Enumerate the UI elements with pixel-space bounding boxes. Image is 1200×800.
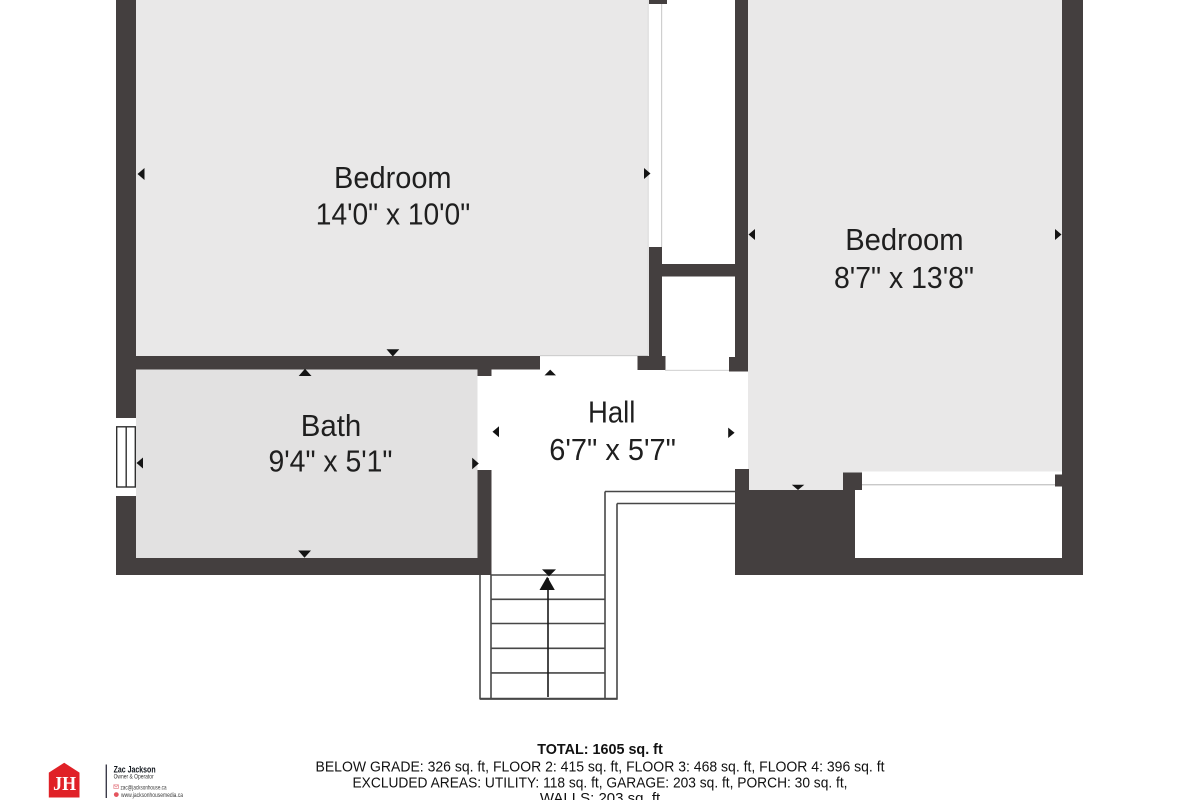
svg-text:9'4" x 5'1": 9'4" x 5'1" <box>269 444 393 479</box>
svg-text:Zac Jackson: Zac Jackson <box>114 765 156 775</box>
svg-text:TOTAL: 1605 sq. ft: TOTAL: 1605 sq. ft <box>537 741 663 758</box>
svg-text:Bedroom: Bedroom <box>845 222 963 257</box>
svg-text:Bedroom: Bedroom <box>334 160 452 195</box>
svg-text:EXCLUDED AREAS: UTILITY: 118 s: EXCLUDED AREAS: UTILITY: 118 sq. ft, GAR… <box>353 775 848 792</box>
svg-text:Bath: Bath <box>301 408 362 443</box>
svg-text:www.jacksonhousemedia.ca: www.jacksonhousemedia.ca <box>120 793 183 799</box>
svg-text:8'7" x 13'8": 8'7" x 13'8" <box>834 260 974 295</box>
svg-text:Owner & Operator: Owner & Operator <box>114 775 154 781</box>
svg-text:JH: JH <box>53 773 76 795</box>
svg-text:WALLS: 203 sq. ft: WALLS: 203 sq. ft <box>540 790 661 800</box>
svg-text:6'7" x 5'7": 6'7" x 5'7" <box>549 432 676 467</box>
svg-text:Hall: Hall <box>588 395 635 430</box>
svg-text:zac@jacksonhouse.ca: zac@jacksonhouse.ca <box>121 786 168 792</box>
svg-text:14'0" x 10'0": 14'0" x 10'0" <box>316 197 470 232</box>
svg-text:BELOW GRADE: 326 sq. ft, FLOOR: BELOW GRADE: 326 sq. ft, FLOOR 2: 415 sq… <box>316 758 886 775</box>
